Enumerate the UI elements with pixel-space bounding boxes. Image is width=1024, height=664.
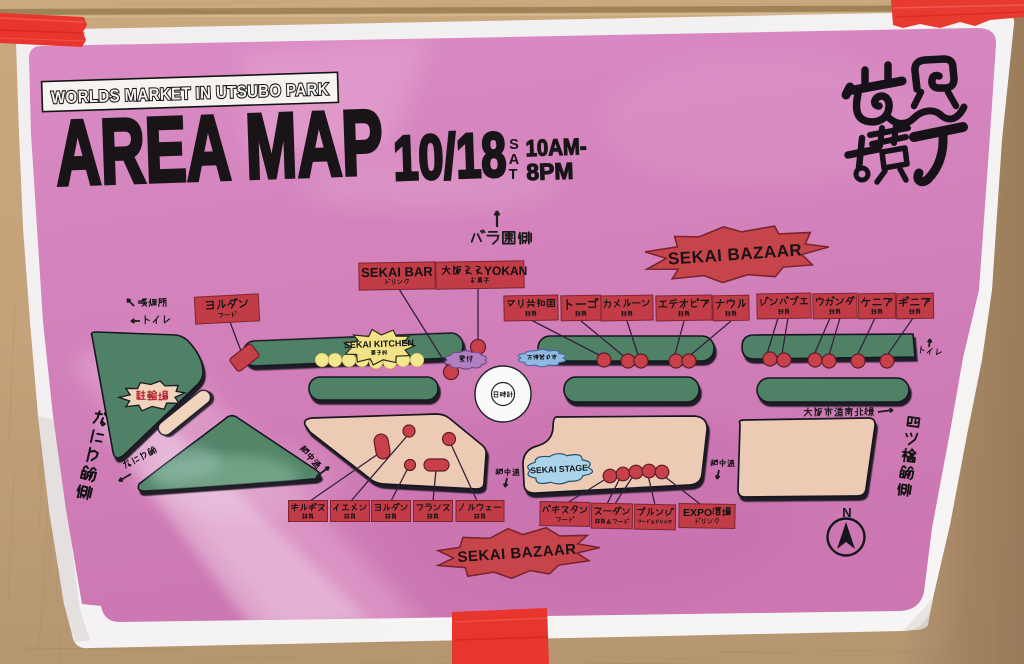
svg-text:8PM: 8PM: [526, 158, 574, 186]
svg-text:A: A: [509, 152, 520, 168]
svg-text:S: S: [509, 137, 519, 153]
svg-text:10/18: 10/18: [392, 120, 507, 194]
svg-text:10AM-: 10AM-: [525, 133, 587, 161]
svg-text:AREA MAP: AREA MAP: [54, 92, 384, 205]
svg-text:N: N: [842, 505, 851, 520]
svg-text:&: &: [606, 519, 611, 526]
svg-text:EXPO: EXPO: [683, 507, 712, 519]
svg-text:T: T: [509, 167, 518, 183]
svg-text:YOKAN: YOKAN: [484, 264, 527, 278]
svg-text:&: &: [651, 520, 655, 526]
svg-text:SEKAI BAR: SEKAI BAR: [361, 264, 433, 280]
